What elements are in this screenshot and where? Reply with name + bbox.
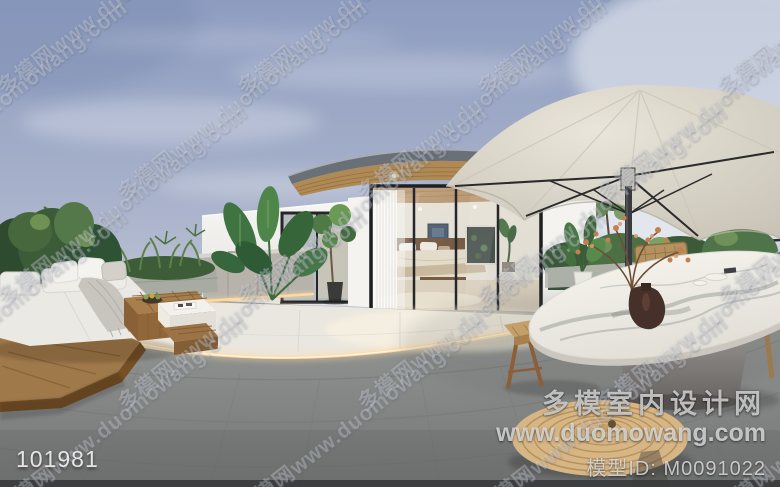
sheer-curtain xyxy=(373,190,405,312)
model-id-text: 模型ID: M0091022 xyxy=(496,459,766,481)
site-name-text: 多模室内设计网 xyxy=(496,390,766,419)
site-watermark-block: 多模室内设计网 www.duomowang.com 模型ID: M0091022 xyxy=(496,390,766,481)
panorama-render: 多模网www.duomowang.com多模网www.duomowang.com… xyxy=(0,0,780,487)
site-url-text: www.duomowang.com xyxy=(496,420,766,447)
bottom-edge-band xyxy=(0,480,780,487)
image-id-label: 101981 xyxy=(16,446,99,473)
